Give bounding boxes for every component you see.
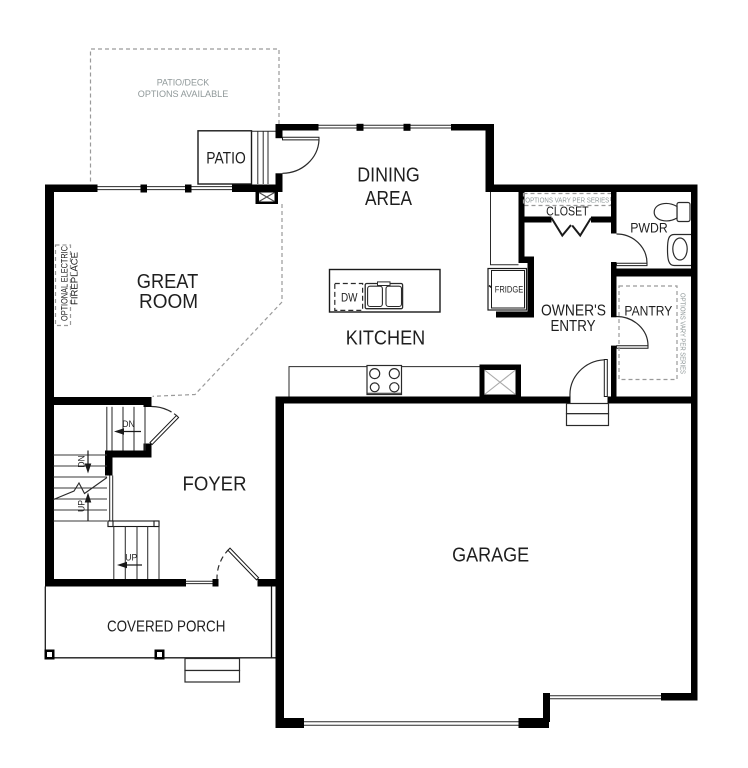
svg-text:KITCHEN: KITCHEN	[346, 328, 426, 350]
svg-text:FOYER: FOYER	[183, 474, 247, 496]
svg-text:PWDR: PWDR	[630, 220, 668, 236]
svg-text:FIREPLACE: FIREPLACE	[70, 252, 80, 305]
svg-text:ENTRY: ENTRY	[551, 318, 596, 335]
svg-text:GARAGE: GARAGE	[452, 545, 529, 567]
svg-text:FRIDGE: FRIDGE	[495, 285, 524, 295]
svg-text:DN: DN	[77, 455, 87, 468]
svg-text:PATIO: PATIO	[206, 149, 246, 168]
svg-text:UP: UP	[125, 553, 137, 563]
svg-text:OPTIONS AVAILABLE: OPTIONS AVAILABLE	[138, 89, 229, 99]
svg-text:PATIO/DECK: PATIO/DECK	[157, 78, 210, 88]
svg-text:COVERED PORCH: COVERED PORCH	[107, 618, 226, 635]
svg-text:CLOSET: CLOSET	[546, 204, 589, 219]
svg-text:GREAT: GREAT	[137, 271, 199, 293]
svg-text:OWNER'S: OWNER'S	[541, 302, 606, 319]
svg-text:OPTIONS VARY PER SERIES: OPTIONS VARY PER SERIES	[679, 293, 688, 374]
svg-text:AREA: AREA	[365, 188, 413, 210]
svg-text:DINING: DINING	[357, 165, 420, 187]
svg-text:DN: DN	[122, 419, 135, 429]
svg-text:PANTRY: PANTRY	[624, 302, 673, 318]
svg-text:DW: DW	[341, 291, 358, 305]
svg-text:ROOM: ROOM	[139, 291, 198, 313]
svg-text:OPTIONAL ELECTRIC: OPTIONAL ELECTRIC	[60, 246, 70, 321]
svg-text:UP: UP	[77, 500, 87, 512]
